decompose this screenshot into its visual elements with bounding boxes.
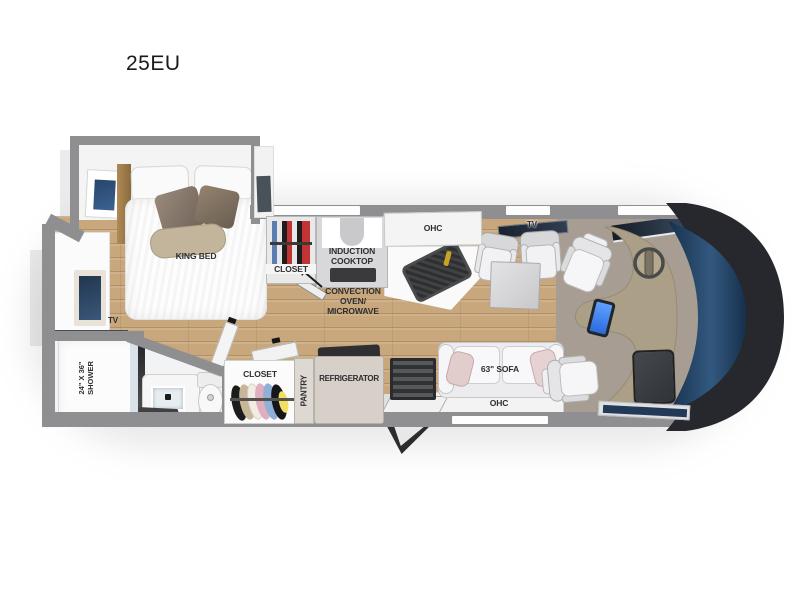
cab-console	[632, 349, 676, 404]
left-slide-shadow	[30, 250, 42, 346]
closet-bottom-label: CLOSET	[228, 369, 292, 379]
cooktop-surface	[330, 268, 376, 282]
bedroom-slideout-wall-top	[70, 136, 260, 145]
shower-label: SHOWER	[86, 361, 95, 395]
bedroom-tv-label: TV	[100, 316, 126, 325]
accent-pillow	[193, 184, 240, 229]
shower-label-wrap: 24" X 36" SHOWER	[58, 346, 114, 410]
refrigerator-label: REFRIGERATOR	[312, 374, 386, 383]
cab-bottom-window	[603, 405, 687, 417]
chair-seat	[559, 360, 600, 397]
living-tv-label: TV	[518, 220, 546, 229]
dinette-table	[489, 261, 541, 310]
wall-left	[42, 224, 55, 427]
bedroom-tv-panel	[256, 176, 271, 212]
closet-rod	[230, 398, 294, 401]
bedroom-window	[93, 179, 116, 210]
shower-size-label: 24" X 36"	[77, 361, 86, 395]
toilet-flush	[207, 394, 214, 401]
refrigerator	[314, 356, 384, 424]
page-title: 25EU	[126, 52, 181, 76]
pantry-label: PANTRY	[299, 363, 308, 419]
closet-top-label: CLOSET	[266, 264, 316, 274]
living-ohc-label: OHC	[454, 398, 544, 408]
convection-label: CONVECTION OVEN/ MICROWAVE	[314, 286, 392, 316]
closet-top-clothes	[272, 221, 310, 265]
window-cutout	[506, 206, 550, 215]
shower-glass	[130, 342, 138, 420]
closet-rod	[270, 242, 312, 245]
sofa-label: 63" SOFA	[458, 364, 542, 374]
floorplan-page: 25EU KING BED TV 24" X 36" SHOWER	[0, 0, 800, 600]
closet-clothes	[232, 383, 294, 423]
window-cutout	[618, 206, 688, 215]
window-slats	[390, 358, 436, 400]
cooktop-label: INDUCTION COOKTOP	[310, 246, 394, 266]
bedroom-tv	[79, 276, 101, 320]
driver-chair	[546, 354, 604, 405]
window-cutout	[452, 416, 548, 424]
window-cutout	[268, 206, 360, 215]
bedroom-slideout-wall-left	[70, 136, 79, 234]
range-hood-center	[340, 218, 364, 246]
kitchen-ohc-label: OHC	[398, 223, 468, 233]
vanity-faucet	[165, 394, 171, 400]
king-bed-label: KING BED	[150, 251, 242, 261]
